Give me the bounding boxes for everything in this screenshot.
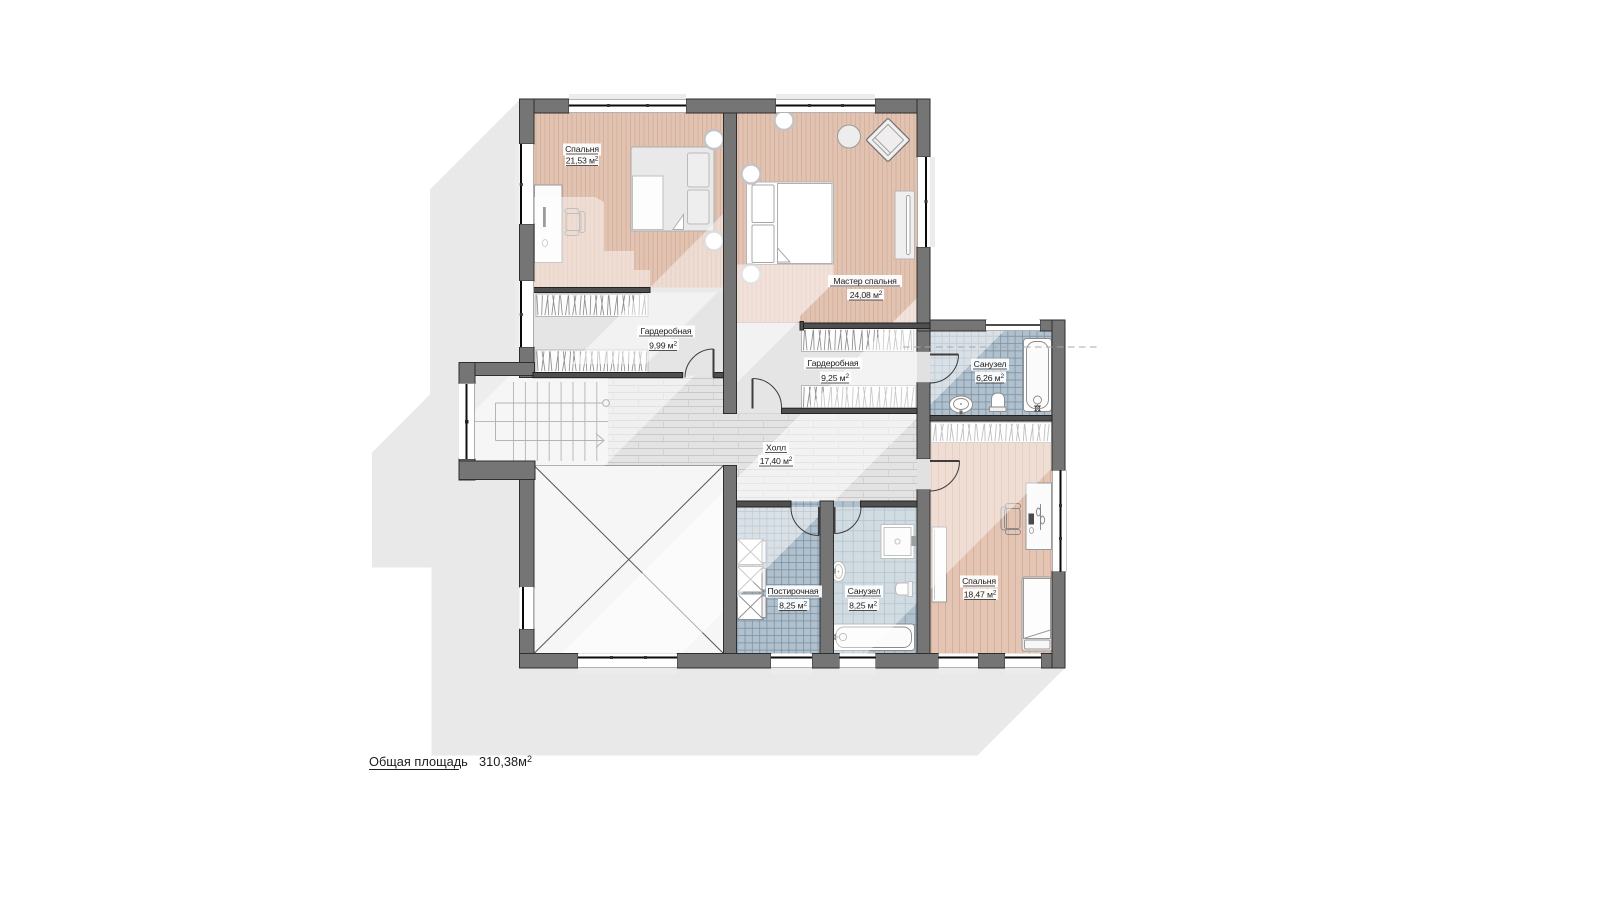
svg-text:Гардеробная: Гардеробная (641, 326, 692, 336)
svg-text:Спальня: Спальня (565, 144, 599, 154)
svg-text:8,25 м2: 8,25 м2 (779, 601, 807, 611)
svg-text:Санузел: Санузел (974, 359, 1007, 369)
svg-text:24,08 м2: 24,08 м2 (850, 290, 883, 300)
svg-text:18,47 м2: 18,47 м2 (964, 590, 997, 600)
svg-text:17,40 м2: 17,40 м2 (760, 456, 793, 466)
svg-text:Спальня: Спальня (962, 576, 996, 586)
svg-text:9,25 м2: 9,25 м2 (821, 373, 849, 383)
svg-text:Постирочная: Постирочная (768, 586, 819, 596)
svg-text:6,26 м2: 6,26 м2 (976, 373, 1004, 383)
svg-text:Общая площадь: Общая площадь (369, 754, 468, 769)
svg-text:Холл: Холл (766, 443, 786, 453)
svg-text:Мастер спальня: Мастер спальня (833, 276, 897, 286)
svg-text:9,99 м2: 9,99 м2 (649, 341, 677, 351)
svg-text:310,38м2: 310,38м2 (479, 754, 532, 769)
svg-text:Гардеробная: Гардеробная (808, 358, 859, 368)
svg-text:21,53 м2: 21,53 м2 (566, 156, 599, 166)
svg-text:8,25 м2: 8,25 м2 (849, 601, 877, 611)
svg-text:Санузел: Санузел (848, 586, 881, 596)
